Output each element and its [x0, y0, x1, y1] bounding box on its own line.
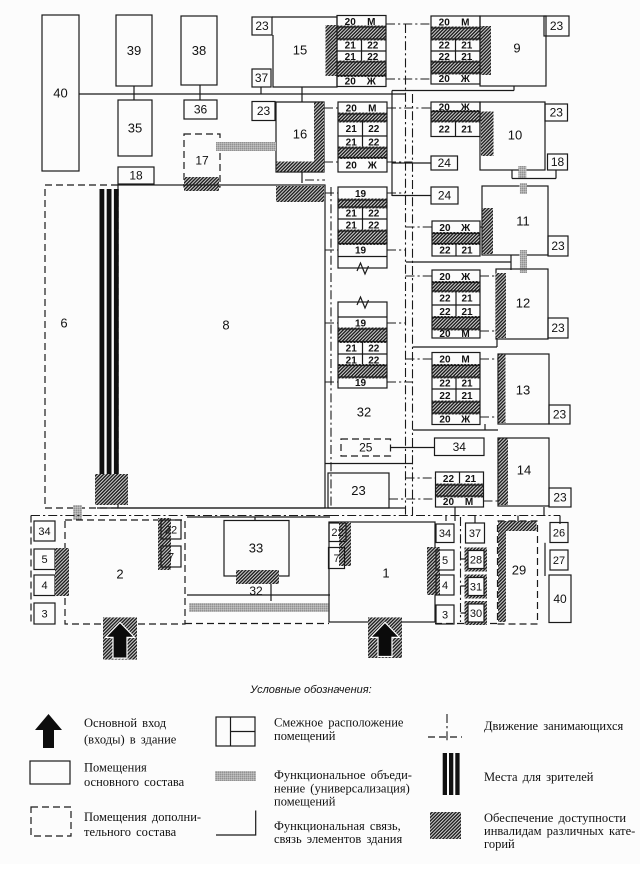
svg-text:7: 7 [168, 551, 174, 563]
svg-text:22: 22 [443, 474, 455, 485]
svg-text:27: 27 [553, 555, 565, 567]
svg-text:21: 21 [461, 124, 473, 135]
svg-text:20: 20 [345, 77, 357, 88]
svg-text:18: 18 [129, 169, 143, 183]
svg-text:33: 33 [249, 541, 263, 556]
svg-text:21: 21 [465, 474, 477, 485]
svg-text:34: 34 [439, 528, 451, 540]
svg-text:Функциональная связь,: Функциональная связь, [274, 819, 401, 833]
svg-text:22: 22 [439, 391, 451, 402]
svg-text:20: 20 [443, 497, 455, 508]
svg-text:10: 10 [508, 128, 522, 143]
svg-text:31: 31 [470, 581, 482, 593]
svg-text:3: 3 [41, 608, 47, 620]
svg-text:22: 22 [439, 294, 451, 305]
svg-text:28: 28 [470, 554, 482, 566]
svg-text:24: 24 [438, 156, 452, 170]
svg-text:22: 22 [439, 41, 451, 52]
svg-text:32: 32 [357, 405, 371, 420]
svg-text:5: 5 [442, 555, 448, 567]
svg-text:20: 20 [439, 74, 451, 85]
svg-text:2: 2 [116, 567, 123, 582]
svg-text:19: 19 [355, 189, 367, 200]
svg-text:12: 12 [516, 296, 530, 311]
svg-text:9: 9 [513, 41, 520, 56]
svg-text:23: 23 [551, 321, 565, 335]
svg-text:(входы) в здание: (входы) в здание [84, 733, 177, 747]
svg-text:21: 21 [461, 245, 473, 256]
svg-text:Ж: Ж [460, 74, 471, 85]
svg-text:21: 21 [345, 41, 357, 52]
svg-text:34: 34 [453, 440, 467, 454]
svg-text:Помещения: Помещения [84, 761, 147, 775]
svg-text:22: 22 [165, 524, 177, 536]
svg-text:связь элементов здания: связь элементов здания [274, 832, 402, 846]
svg-text:17: 17 [195, 154, 209, 168]
svg-text:21: 21 [461, 294, 473, 305]
svg-text:21: 21 [346, 209, 358, 220]
svg-text:основного состава: основного состава [84, 775, 185, 789]
svg-text:22: 22 [367, 41, 379, 52]
svg-text:Места для зрителей: Места для зрителей [484, 770, 594, 784]
svg-text:21: 21 [461, 41, 473, 52]
svg-text:Движение занимающихся: Движение занимающихся [484, 719, 624, 733]
svg-text:22: 22 [368, 343, 380, 354]
svg-text:23: 23 [550, 106, 564, 120]
svg-text:Смежное расположение: Смежное расположение [274, 716, 404, 730]
svg-text:18: 18 [551, 155, 565, 169]
svg-text:23: 23 [553, 408, 567, 422]
svg-text:Помещения дополни-: Помещения дополни- [84, 810, 201, 824]
svg-text:22: 22 [368, 124, 380, 135]
svg-text:8: 8 [222, 318, 229, 333]
svg-text:Функциональное объеди-: Функциональное объеди- [274, 768, 412, 782]
svg-text:23: 23 [255, 19, 269, 33]
svg-text:4: 4 [442, 580, 448, 592]
svg-text:7: 7 [333, 553, 339, 565]
svg-text:34: 34 [38, 526, 50, 538]
svg-text:3: 3 [442, 609, 448, 621]
svg-text:19: 19 [355, 246, 367, 257]
svg-text:24: 24 [438, 189, 452, 203]
svg-text:21: 21 [461, 379, 473, 390]
svg-text:нение (универсализация): нение (универсализация) [274, 782, 410, 796]
svg-text:Основной вход: Основной вход [84, 716, 167, 730]
svg-text:1: 1 [382, 566, 389, 581]
svg-text:15: 15 [293, 43, 307, 58]
svg-text:30: 30 [470, 608, 482, 620]
svg-text:23: 23 [553, 491, 567, 505]
svg-text:16: 16 [293, 127, 307, 142]
svg-text:38: 38 [192, 43, 206, 58]
svg-text:20: 20 [346, 160, 358, 171]
svg-text:23: 23 [551, 239, 565, 253]
svg-text:23: 23 [550, 19, 564, 33]
svg-text:Ж: Ж [366, 77, 377, 88]
svg-text:Условные обозначения:: Условные обозначения: [249, 684, 371, 696]
svg-text:Ж: Ж [367, 160, 378, 171]
svg-text:21: 21 [461, 391, 473, 402]
svg-text:М: М [465, 497, 473, 508]
svg-text:Ж: Ж [460, 414, 471, 425]
svg-text:6: 6 [60, 316, 67, 331]
svg-text:инвалидам различных кате-: инвалидам различных кате- [484, 824, 635, 838]
svg-text:35: 35 [128, 121, 142, 136]
svg-text:помещений: помещений [274, 795, 336, 809]
svg-text:5: 5 [41, 554, 47, 566]
svg-text:40: 40 [553, 592, 567, 606]
svg-text:26: 26 [553, 527, 565, 539]
svg-text:22: 22 [331, 527, 343, 539]
svg-text:22: 22 [368, 209, 380, 220]
svg-text:19: 19 [355, 378, 367, 389]
svg-text:21: 21 [346, 343, 358, 354]
svg-text:22: 22 [439, 124, 451, 135]
svg-text:36: 36 [194, 103, 208, 117]
svg-text:тельного состава: тельного состава [84, 825, 177, 839]
svg-text:М: М [461, 355, 469, 366]
svg-text:помещений: помещений [274, 729, 336, 743]
svg-text:40: 40 [53, 86, 67, 101]
svg-text:Обеспечение доступности: Обеспечение доступности [484, 811, 626, 825]
svg-text:11: 11 [516, 214, 530, 229]
svg-text:4: 4 [41, 580, 47, 592]
svg-text:37: 37 [255, 71, 269, 85]
svg-text:37: 37 [469, 528, 481, 540]
svg-text:22: 22 [439, 379, 451, 390]
svg-text:23: 23 [257, 104, 271, 118]
svg-text:39: 39 [127, 43, 141, 58]
svg-text:23: 23 [351, 483, 365, 498]
svg-text:14: 14 [517, 463, 531, 478]
svg-text:25: 25 [359, 441, 373, 455]
svg-text:32: 32 [249, 584, 263, 598]
svg-text:22: 22 [439, 245, 451, 256]
svg-text:21: 21 [346, 124, 358, 135]
svg-text:20: 20 [439, 355, 451, 366]
svg-text:13: 13 [516, 383, 530, 398]
svg-text:29: 29 [512, 563, 526, 578]
svg-text:горий: горий [484, 837, 515, 851]
svg-text:20: 20 [439, 414, 451, 425]
